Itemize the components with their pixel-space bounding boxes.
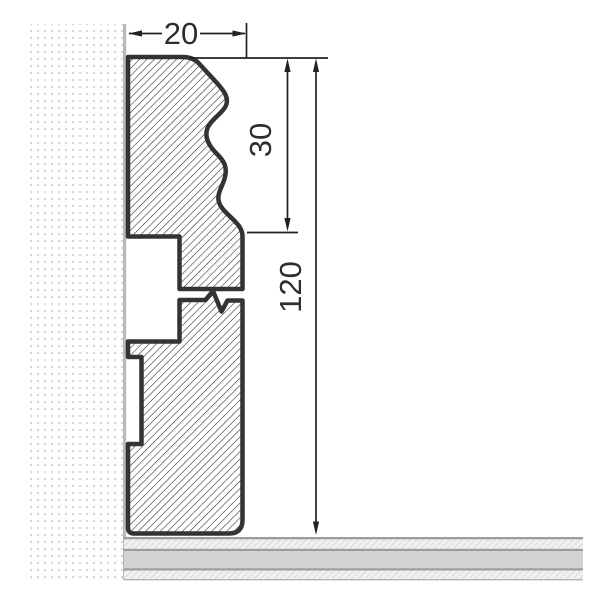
skirting-profile [128, 57, 243, 534]
floor-bottom-line [124, 579, 583, 580]
dimension-total-height [313, 59, 319, 536]
technical-drawing-canvas: 20 30 120 [0, 0, 604, 604]
wall-plaster-texture [26, 24, 123, 580]
wall-section [26, 24, 126, 580]
floor-section [124, 537, 583, 580]
floor-hatch-band-lower [124, 571, 583, 579]
floor-solid-band [124, 551, 583, 568]
arrowhead-down-icon [313, 522, 319, 536]
width-dimension-label: 20 [164, 16, 198, 51]
floor-hatch-band-upper [124, 539, 583, 548]
arrowhead-left-icon [129, 30, 143, 36]
arrowhead-up-icon [313, 59, 319, 73]
arrowhead-down-icon [284, 218, 290, 232]
dimension-top-section [284, 59, 290, 232]
floor-divider-line-1 [124, 549, 583, 551]
arrowhead-right-icon [233, 30, 247, 36]
total-height-dimension-label: 120 [273, 261, 308, 313]
floor-divider-line-2 [124, 568, 583, 570]
arrowhead-up-icon [284, 59, 290, 73]
top-section-dimension-label: 30 [243, 123, 278, 157]
wall-surface-line [123, 24, 126, 580]
profile-lower-section [128, 291, 243, 534]
skirting-section-drawing: 20 30 120 [0, 0, 604, 604]
profile-upper-section [128, 57, 243, 289]
floor-top-line [124, 537, 583, 539]
